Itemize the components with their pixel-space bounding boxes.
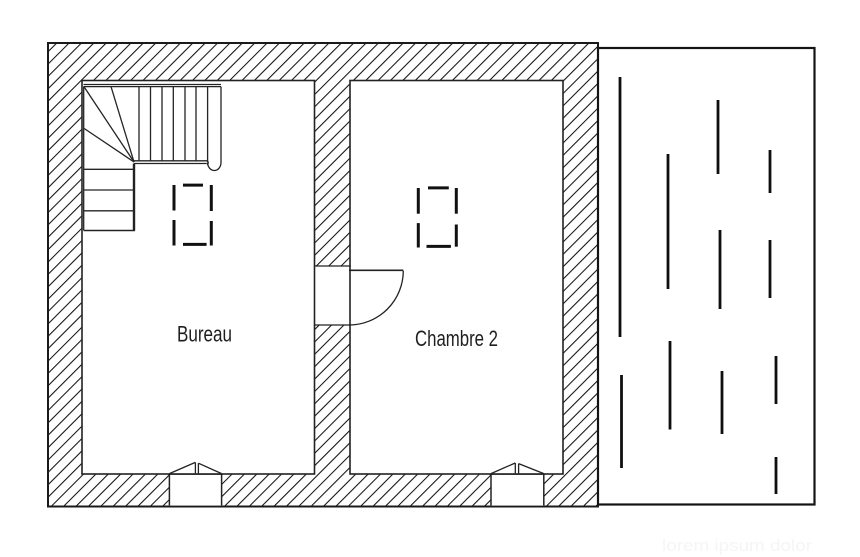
svg-text:lorem ipsum dolor: lorem ipsum dolor [662, 536, 812, 555]
svg-text:Bureau: Bureau [177, 322, 232, 347]
svg-text:Chambre 2: Chambre 2 [415, 326, 498, 351]
